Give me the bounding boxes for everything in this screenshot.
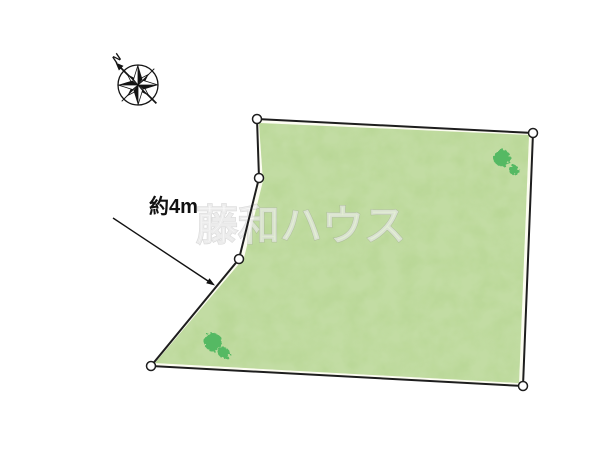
dimension-arrowhead-icon <box>206 278 215 285</box>
compass-rose: N <box>110 51 158 105</box>
tree-icon <box>219 348 230 359</box>
grass-texture <box>145 115 540 390</box>
dimension-label: 約4m <box>149 194 198 218</box>
tree-icon <box>494 150 511 167</box>
watermark: 藤和ハウス <box>196 202 406 249</box>
tree-icon <box>204 333 222 351</box>
vertex-marker <box>519 382 528 391</box>
dimension-leader-line <box>113 218 208 281</box>
vertex-marker <box>529 129 538 138</box>
parcel-grass <box>145 115 540 390</box>
north-label: N <box>110 51 125 66</box>
plot-svg: 藤和ハウス <box>0 0 600 450</box>
vertex-marker <box>255 174 264 183</box>
vertex-marker <box>147 362 156 371</box>
vertex-marker <box>253 115 262 124</box>
plot-diagram: 藤和ハウス <box>0 0 600 450</box>
vertex-marker <box>235 255 244 264</box>
tree-icon <box>509 165 519 175</box>
